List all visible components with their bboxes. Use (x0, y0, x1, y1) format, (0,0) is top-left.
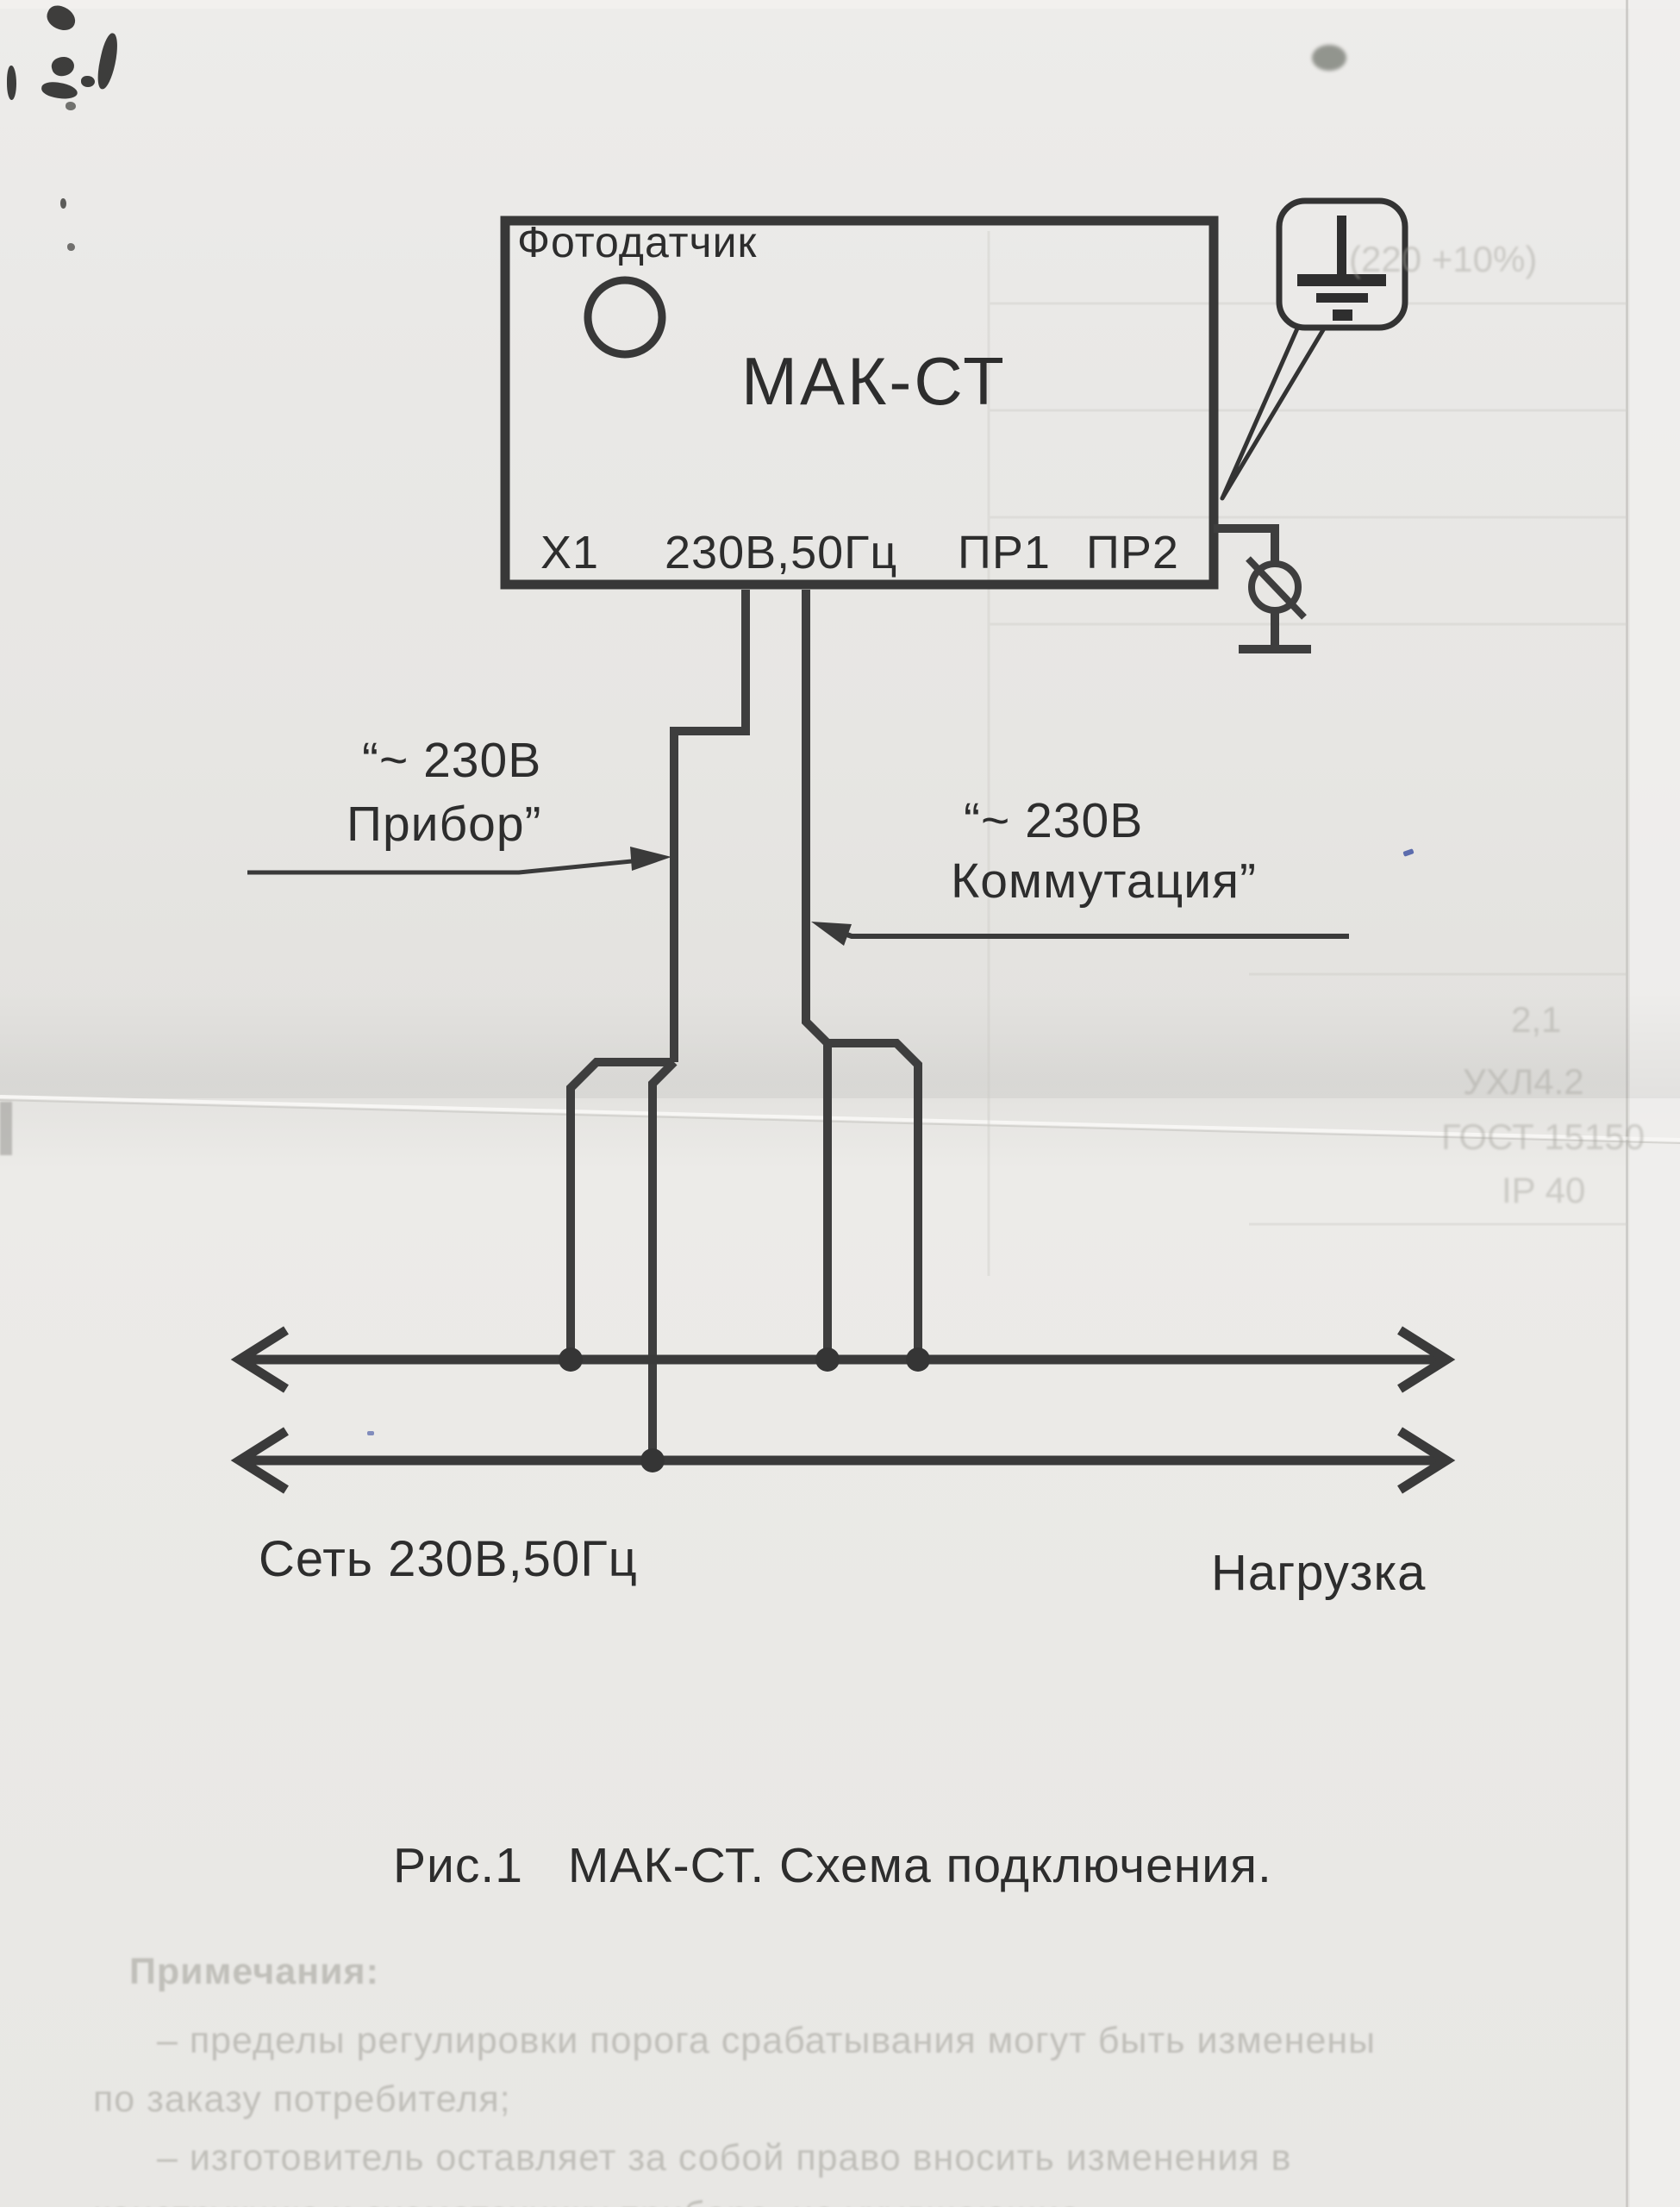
switching-label-line1: “~ 230В (964, 797, 1143, 846)
bleedthrough-note-line: – изготовитель оставляет за собой право … (157, 2140, 1291, 2177)
mains-bus-line (240, 1330, 1446, 1389)
figure-caption: Рис.1МАК-СТ. Схема подключения. (393, 1841, 1272, 1891)
switching-arrow (811, 922, 1349, 946)
junction-dots (559, 1347, 930, 1472)
figure-number: Рис.1 (393, 1838, 523, 1893)
bleedthrough-notes-title: Примечания: (129, 1954, 379, 1991)
photosensor-circle (588, 280, 662, 354)
figure-title: МАК-СТ. Схема подключения. (568, 1838, 1272, 1893)
junction-dot (640, 1448, 665, 1472)
terminal-pr2: ПР2 (1086, 529, 1179, 576)
blue-speck (367, 1431, 374, 1435)
ink-smudge (66, 102, 76, 110)
ink-smudge (60, 198, 66, 209)
junction-dot (815, 1347, 840, 1372)
scanned-page: Фотодатчик МАК-СТ Х1 230В,50Гц ПР1 ПР2 “… (0, 0, 1680, 2207)
junction-dot (559, 1347, 583, 1372)
device-model-title: МАК-СТ (741, 347, 1007, 415)
bleedthrough-note-line: – пределы регулировки порога срабатывани… (157, 2023, 1376, 2060)
bleedthrough-spec: 2,1 (1511, 1002, 1561, 1038)
edge-smudge (0, 1102, 12, 1155)
fold-crease (0, 991, 1680, 1143)
bleedthrough-note-line: по заказу потребителя; (93, 2081, 511, 2118)
ink-smudge (7, 66, 16, 100)
neutral-bus-line (240, 1431, 1446, 1490)
dark-smudge (1312, 45, 1346, 71)
photosensor-label: Фотодатчик (517, 221, 757, 264)
mains-label: Сеть 230В,50Гц (259, 1535, 638, 1585)
instrument-label-line2: Прибор” (347, 800, 542, 849)
junction-dot (906, 1347, 930, 1372)
switching-label-line2: Коммутация” (951, 857, 1257, 906)
ground-wire (1214, 528, 1275, 648)
switching-wire (806, 590, 918, 1360)
bleedthrough-spec: УХЛ4.2 (1463, 1064, 1584, 1100)
bleedthrough-spec: (220 +10%) (1349, 241, 1537, 278)
bleedthrough-note-line: конструкцию и схемотехнику прибора, не у… (93, 2197, 1081, 2207)
terminal-230v: 230В,50Гц (665, 529, 897, 576)
ink-smudge (81, 76, 95, 87)
ink-smudge (67, 243, 75, 251)
terminal-x1: Х1 (540, 529, 599, 576)
terminal-pr1: ПР1 (958, 529, 1051, 576)
bleedthrough-spec: IP 40 (1502, 1172, 1585, 1209)
instrument-label-line1: “~ 230В (362, 736, 541, 785)
bleedthrough-spec: ГОСТ 15150 (1441, 1119, 1645, 1155)
load-label: Нагрузка (1211, 1548, 1426, 1598)
